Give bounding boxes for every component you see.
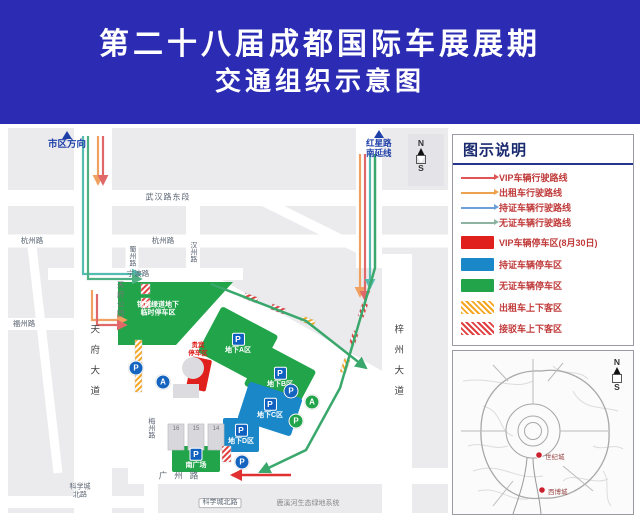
area-label: P地下A区 [225,333,251,355]
compass-north-icon [613,367,621,375]
area-label: P地下D区 [228,424,254,446]
shuttle-stop-marker-icon: A [156,375,171,390]
road-label: 武汉路东段 [146,194,191,203]
parking-icon: P [235,424,248,437]
route-line-swatch [461,177,495,179]
road-label: 杭州路 [21,237,44,245]
legend-item-label: 出租车上下客区 [499,301,562,314]
traffic-map: 市区方向 红星路 南延线 N S 锦城绿道地下 临时停车区 贵宾 停车区 武汉路… [8,128,448,513]
parking-icon: P [190,448,203,461]
legend-item-label: 持证车辆停车区 [499,258,562,271]
road-label: 梅州路 [147,418,155,439]
hall-number-label: 15 [193,426,200,432]
title-banner: 第二十八届成都国际车展展期 交通组织示意图 [0,0,640,124]
area-label-vip: 贵宾 停车区 [188,342,208,358]
inset-ring-roads [481,370,609,498]
direction-label-hongxing: 红星路 南延线 [366,130,392,159]
title-line-2: 交通组织示意图 [215,67,425,96]
arrow-icon [494,204,499,210]
parking-icon: P [274,367,287,380]
up-arrow-icon [62,131,72,139]
legend-panel: 图示说明 VIP车辆行驶路线出租车行驶路线持证车辆行驶路线无证车辆行驶路线 VI… [452,134,634,346]
inset-marker-label: 世纪城 [545,451,565,461]
title-line-1: 第二十八届成都国际车展展期 [99,28,541,61]
legend-title: 图示说明 [453,135,633,165]
legend-item-label: 无证车辆停车区 [499,279,562,292]
area-label: P南广场 [186,448,207,470]
route-line-swatch [461,192,495,194]
road-label: 杭州路 [152,237,175,245]
legend-route-item: 出租车行驶路线 [461,185,625,200]
legend-item-label: VIP车辆停车区(8月30日) [499,236,598,249]
legend-route-item: 持证车辆行驶路线 [461,200,625,215]
hall-number-label: 14 [213,426,220,432]
compass-south-icon [613,375,621,382]
legend-item-label: VIP车辆行驶路线 [499,171,568,184]
road-label: 宁波路 [127,270,150,278]
inset-compass: N S [613,357,621,392]
road-label: 天府大道 [88,324,98,406]
inset-marker-label: 西博城 [548,486,568,496]
legend-zone-item: 持证车辆停车区 [461,254,625,276]
legend-zone-item: 出租车上下客区 [461,297,625,319]
road-label: 广州路 [159,471,206,480]
compass-south-icon [417,156,425,163]
zone-swatch [461,301,494,314]
route-line-swatch [461,207,495,209]
legend-item-label: 无证车辆行驶路线 [499,216,571,229]
inset-minor-roads [463,366,623,506]
shuttle-stop-marker-icon: A [305,395,320,410]
road-label: 蜀州路 [128,246,136,267]
road-label: 鹿溪河生态绿地系统 [277,500,340,508]
zone-swatch [461,236,494,249]
legend-route-item: 无证车辆行驶路线 [461,215,625,230]
road-label: 汉州路 [189,242,197,263]
arrow-icon [494,219,499,225]
legend-item-label: 持证车辆行驶路线 [499,201,571,214]
legend-item-label: 接驳车上下客区 [499,322,562,335]
road-label: 福州路 [13,320,36,328]
area-label-greenway: 锦城绿道地下 临时停车区 [137,302,179,319]
up-arrow-icon [374,130,384,138]
area-label: P地下C区 [257,398,283,420]
road-label: 科学城北路 [199,498,242,508]
legend-item-label: 出租车行驶路线 [499,186,562,199]
road-label: 天府公园 [116,281,124,319]
legend-route-items: VIP车辆行驶路线出租车行驶路线持证车辆行驶路线无证车辆行驶路线 [453,165,633,230]
zone-swatch [461,279,494,292]
arrow-icon [494,189,499,195]
parking-marker-icon: P [235,455,250,470]
road-label: 梓州大道 [392,324,402,406]
road-label: 科学城北路 [67,483,93,498]
inset-geometry [453,351,633,514]
map-geometry [8,128,448,513]
parking-icon: P [264,398,277,411]
hall-number-label: 16 [173,426,180,432]
parking-icon: P [232,333,245,346]
compass-north-icon [417,148,425,156]
legend-zone-item: 接驳车上下客区 [461,318,625,340]
parking-marker-icon: P [129,361,144,376]
legend-zone-items: VIP车辆停车区(8月30日)持证车辆停车区无证车辆停车区出租车上下客区接驳车上… [453,230,633,340]
parking-marker-icon: P [289,414,304,429]
compass-block [408,134,444,186]
route-line-swatch [461,222,495,224]
map-compass: N S [417,138,425,173]
zone-swatch [461,322,494,335]
direction-label-city: 市区方向 [48,131,86,151]
arrow-icon [494,174,499,180]
legend-zone-item: VIP车辆停车区(8月30日) [461,232,625,254]
legend-zone-item: 无证车辆停车区 [461,275,625,297]
zone-swatch [461,258,494,271]
inset-city-map: 世纪城 西博城 N S [452,350,634,515]
legend-route-item: VIP车辆行驶路线 [461,170,625,185]
parking-marker-icon: P [284,384,299,399]
